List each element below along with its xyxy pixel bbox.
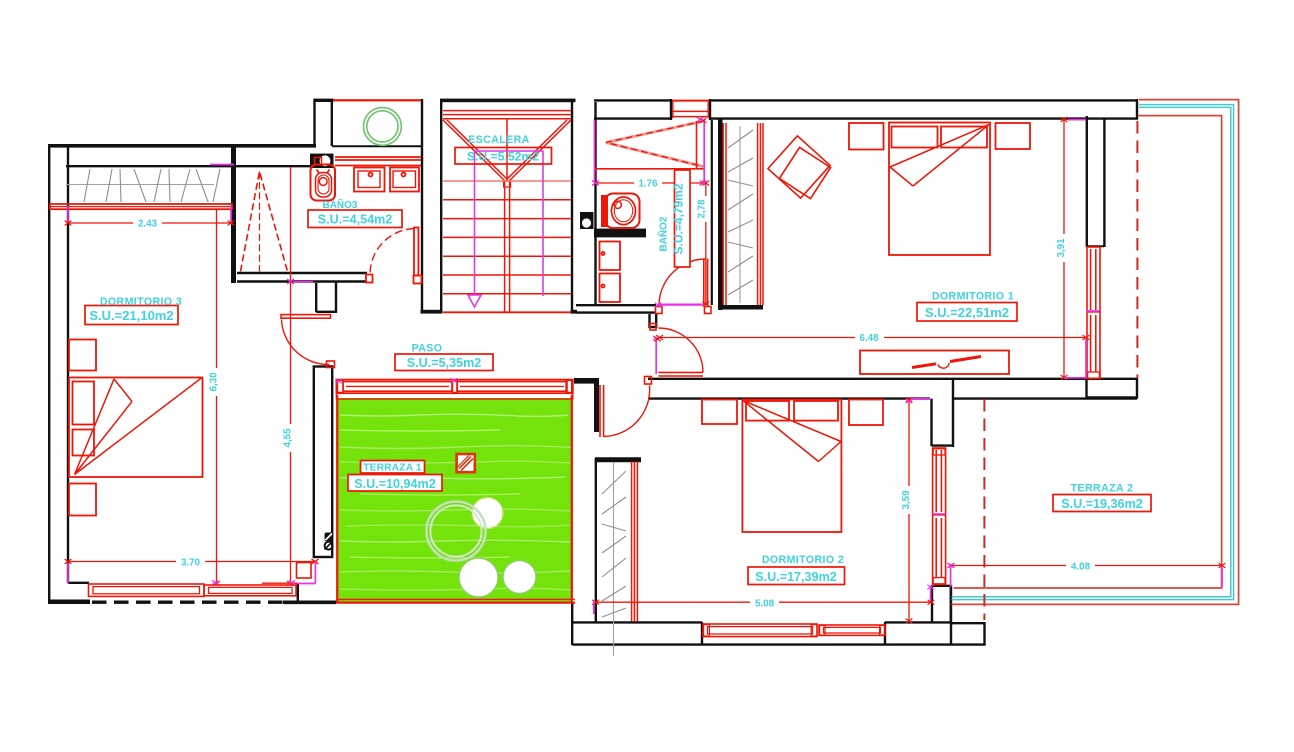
- svg-text:DORMITORIO 3: DORMITORIO 3: [100, 296, 182, 308]
- svg-text:S.U.=4,79m2: S.U.=4,79m2: [671, 183, 685, 254]
- svg-text:TERRAZA 1: TERRAZA 1: [363, 462, 422, 473]
- svg-text:S.U.=17,39m2: S.U.=17,39m2: [755, 570, 837, 584]
- svg-text:S.U.=5,35m2: S.U.=5,35m2: [407, 356, 482, 370]
- svg-text:4,55: 4,55: [283, 428, 294, 448]
- svg-text:S.U.=10,94m2: S.U.=10,94m2: [354, 477, 436, 491]
- svg-text:2.43: 2.43: [138, 218, 158, 229]
- svg-text:ESCALERA: ESCALERA: [468, 134, 529, 146]
- svg-text:PASO: PASO: [412, 343, 443, 355]
- svg-text:BAÑO2: BAÑO2: [657, 216, 670, 251]
- svg-text:S.U.=21,10m2: S.U.=21,10m2: [89, 308, 173, 323]
- svg-text:3.70: 3.70: [181, 557, 201, 568]
- svg-text:4.08: 4.08: [1071, 561, 1091, 572]
- svg-text:6,30: 6,30: [209, 372, 220, 392]
- svg-text:3,91: 3,91: [1056, 238, 1067, 258]
- svg-text:TERRAZA 2: TERRAZA 2: [1071, 482, 1134, 494]
- svg-text:BAÑO3: BAÑO3: [322, 198, 357, 211]
- svg-text:DORMITORIO 2: DORMITORIO 2: [762, 554, 844, 566]
- svg-text:DORMITORIO 1: DORMITORIO 1: [932, 290, 1014, 302]
- svg-text:S.U.=22,51m2: S.U.=22,51m2: [925, 305, 1009, 320]
- svg-text:6.48: 6.48: [859, 333, 879, 344]
- svg-text:S.U.=5,52m2: S.U.=5,52m2: [467, 149, 539, 163]
- svg-text:5.08: 5.08: [755, 598, 775, 609]
- svg-text:S.U.=19,36m2: S.U.=19,36m2: [1061, 497, 1143, 511]
- svg-text:S.U.=4,54m2: S.U.=4,54m2: [318, 213, 393, 227]
- svg-text:2,78: 2,78: [697, 199, 708, 219]
- svg-text:3,59: 3,59: [901, 490, 912, 510]
- svg-text:1.76: 1.76: [638, 179, 658, 190]
